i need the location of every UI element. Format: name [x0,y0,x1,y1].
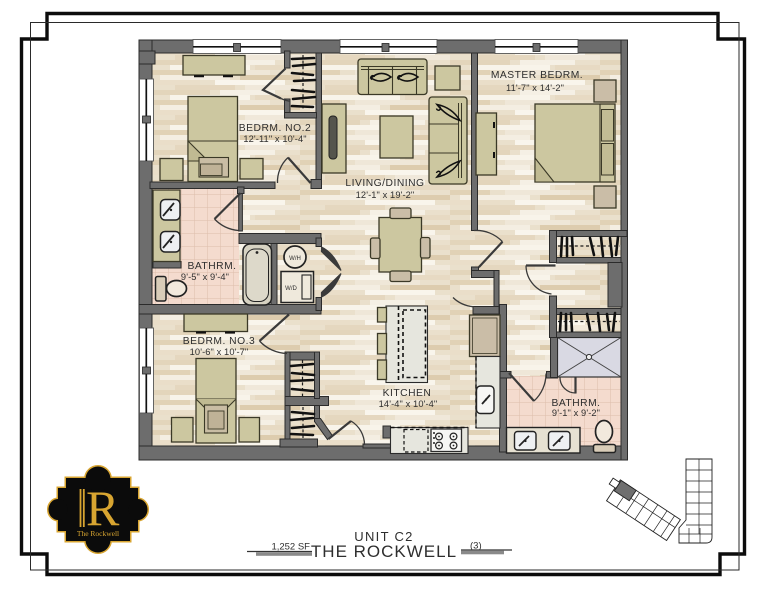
svg-text:14'-4" x 10'-4": 14'-4" x 10'-4" [379,399,438,409]
svg-text:BEDRM. NO.2: BEDRM. NO.2 [239,123,311,134]
svg-text:9'-1" x 9'-2": 9'-1" x 9'-2" [552,408,600,418]
svg-text:THE ROCKWELL: THE ROCKWELL [311,542,457,561]
svg-text:11'-7" x 14'-2": 11'-7" x 14'-2" [506,83,564,93]
svg-text:BATHRM.: BATHRM. [187,261,236,272]
svg-text:LIVING/DINING: LIVING/DINING [345,178,424,189]
svg-text:10'-6" x 10'-7": 10'-6" x 10'-7" [190,347,249,357]
svg-text:BEDRM. NO.3: BEDRM. NO.3 [183,336,255,347]
svg-text:9'-5" x 9'-4": 9'-5" x 9'-4" [181,272,229,282]
svg-text:1,252 SF: 1,252 SF [271,542,310,553]
svg-text:The Rockwell: The Rockwell [77,529,119,538]
svg-text:12'-1" x 19'-2": 12'-1" x 19'-2" [356,190,415,200]
svg-text:W/D: W/D [285,286,297,292]
svg-text:12'-11" x 10'-4": 12'-11" x 10'-4" [243,134,306,144]
svg-text:R: R [86,480,120,536]
svg-text:MASTER BEDRM.: MASTER BEDRM. [491,70,583,81]
svg-text:W/H: W/H [289,256,301,262]
svg-text:KITCHEN: KITCHEN [383,388,432,399]
